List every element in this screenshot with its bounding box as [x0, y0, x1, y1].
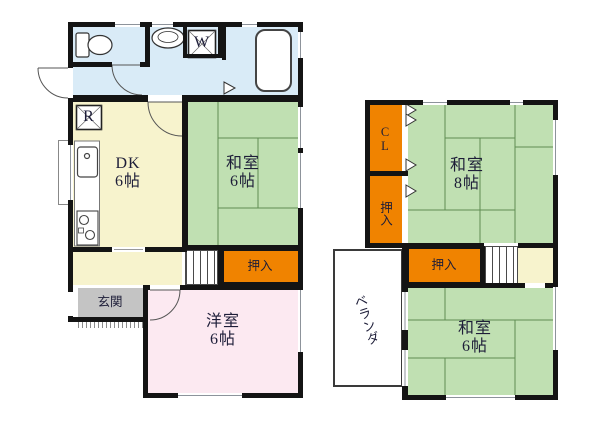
wall	[222, 22, 226, 60]
window	[115, 22, 140, 27]
wall	[365, 243, 484, 248]
wall	[180, 285, 303, 290]
floor-plan-canvas: DK 6帖 和室 6帖 洋室 6帖 押入 玄関 R W 和室 8帖 和室 6帖 …	[0, 0, 600, 424]
room-name: DK	[115, 155, 140, 172]
window	[298, 290, 303, 352]
balcony-door-opening	[402, 350, 408, 386]
room-name: 和室	[458, 320, 492, 337]
wall	[182, 95, 303, 102]
entrance-door-opening	[68, 292, 73, 316]
window	[553, 287, 558, 350]
stairs-1f	[185, 250, 218, 285]
window	[152, 22, 173, 27]
room-name: 洋室	[206, 313, 240, 330]
label-oshiire-1f: 押入	[230, 259, 290, 273]
label-cl: CL	[378, 118, 392, 160]
wall	[68, 247, 112, 252]
wall	[182, 245, 303, 250]
wall	[365, 171, 408, 176]
label-oshiire-2f-upper: 押入	[378, 192, 392, 234]
wall	[218, 250, 223, 285]
room-size: 8帖	[454, 175, 480, 192]
room-size: 6帖	[462, 338, 488, 355]
label-oshiire-2f-mid: 押入	[414, 258, 474, 272]
window	[68, 145, 73, 200]
room-size: 6帖	[210, 331, 236, 348]
label-dk: DK 6帖	[83, 155, 173, 191]
window	[298, 107, 303, 148]
window	[298, 153, 303, 208]
label-refrigerator: R	[77, 108, 101, 126]
window	[242, 22, 257, 27]
hallway-1f	[73, 252, 182, 285]
wall	[145, 247, 187, 252]
sliding-door-line	[114, 249, 143, 250]
window	[298, 32, 303, 58]
door-arc-exterior-side	[38, 68, 68, 98]
window	[178, 393, 242, 398]
room-size: 6帖	[230, 173, 256, 190]
label-washitsu8: 和室 8帖	[422, 157, 512, 193]
stair-landing-2f	[518, 248, 553, 283]
stairs-2f	[484, 246, 518, 287]
room-name: 和室	[450, 157, 484, 174]
label-washitsu-1f: 和室 6帖	[198, 155, 288, 191]
window	[510, 100, 523, 105]
balcony-door-opening	[402, 292, 408, 330]
label-genkan: 玄関	[85, 295, 135, 309]
window	[423, 100, 447, 105]
room-name: 和室	[226, 155, 260, 172]
wall	[182, 102, 188, 245]
wall	[365, 100, 558, 105]
wall	[481, 246, 485, 287]
window	[446, 395, 515, 400]
wall	[140, 62, 150, 67]
wall	[183, 22, 187, 58]
label-yoshitsu: 洋室 6帖	[178, 313, 268, 349]
room-size: 6帖	[115, 173, 141, 190]
wall	[183, 54, 222, 58]
wall	[145, 22, 150, 67]
wall	[402, 283, 520, 288]
label-washer: W	[189, 34, 215, 52]
wall	[143, 285, 150, 290]
entrance-porch-hatch	[78, 322, 146, 328]
window	[553, 120, 558, 175]
wall	[68, 62, 112, 67]
wall	[68, 317, 148, 322]
wall	[518, 283, 525, 288]
door-opening	[68, 68, 73, 98]
wall	[68, 95, 148, 102]
wall	[143, 285, 148, 398]
wall	[518, 243, 558, 248]
label-washitsu6-2f: 和室 6帖	[430, 320, 520, 356]
